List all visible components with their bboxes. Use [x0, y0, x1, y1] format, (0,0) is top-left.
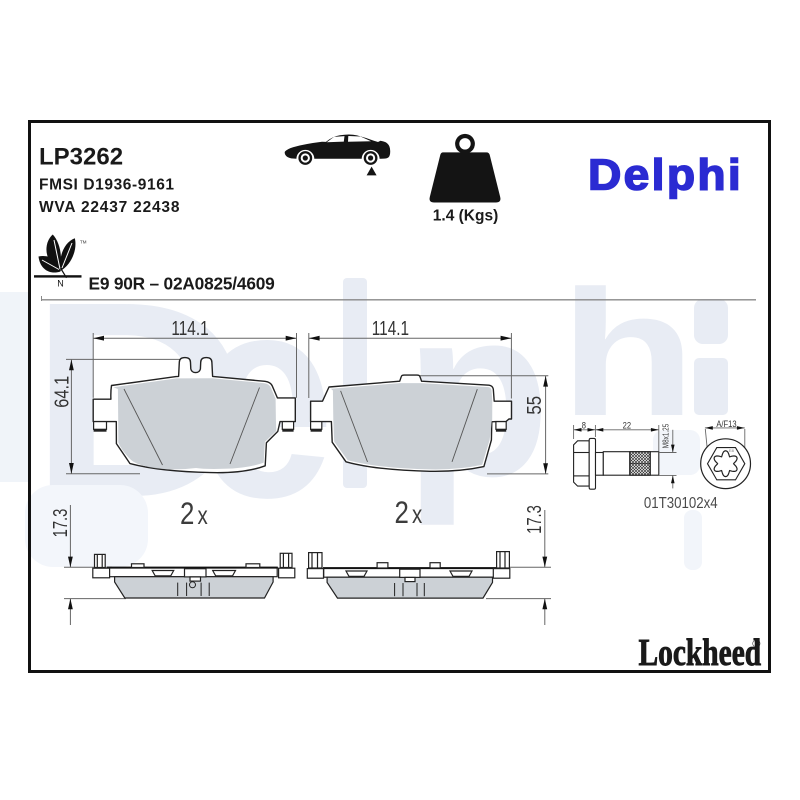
svg-text:x: x — [412, 500, 423, 528]
svg-text:2: 2 — [395, 496, 409, 531]
svg-text:N: N — [57, 279, 64, 289]
svg-text:®: ® — [752, 639, 761, 651]
svg-text:22: 22 — [623, 420, 632, 431]
svg-text:8: 8 — [582, 420, 586, 431]
svg-text:FMSI D1936-9161: FMSI D1936-9161 — [39, 176, 175, 193]
svg-text:x: x — [198, 501, 209, 529]
svg-text:Delphi: Delphi — [588, 150, 743, 200]
svg-text:M8x1.25: M8x1.25 — [661, 424, 671, 449]
svg-text:LP3262: LP3262 — [39, 143, 123, 170]
svg-text:01T30102x4: 01T30102x4 — [644, 495, 718, 512]
svg-text:1.4 (Kgs): 1.4 (Kgs) — [433, 208, 498, 225]
svg-text:E9 90R – 02A0825/4609: E9 90R – 02A0825/4609 — [89, 273, 275, 293]
svg-text:Lockheed: Lockheed — [639, 633, 762, 674]
svg-text:WVA 22437 22438: WVA 22437 22438 — [39, 199, 180, 216]
svg-text:64.1: 64.1 — [50, 376, 73, 408]
svg-text:E8: E8 — [729, 448, 735, 453]
svg-text:TM: TM — [80, 240, 87, 245]
svg-text:55: 55 — [522, 396, 545, 415]
svg-text:114.1: 114.1 — [372, 317, 409, 340]
svg-text:A/F13: A/F13 — [716, 418, 736, 429]
svg-text:114.1: 114.1 — [171, 317, 208, 340]
svg-text:17.3: 17.3 — [523, 505, 546, 534]
svg-text:2: 2 — [180, 497, 194, 532]
svg-text:17.3: 17.3 — [49, 509, 72, 538]
